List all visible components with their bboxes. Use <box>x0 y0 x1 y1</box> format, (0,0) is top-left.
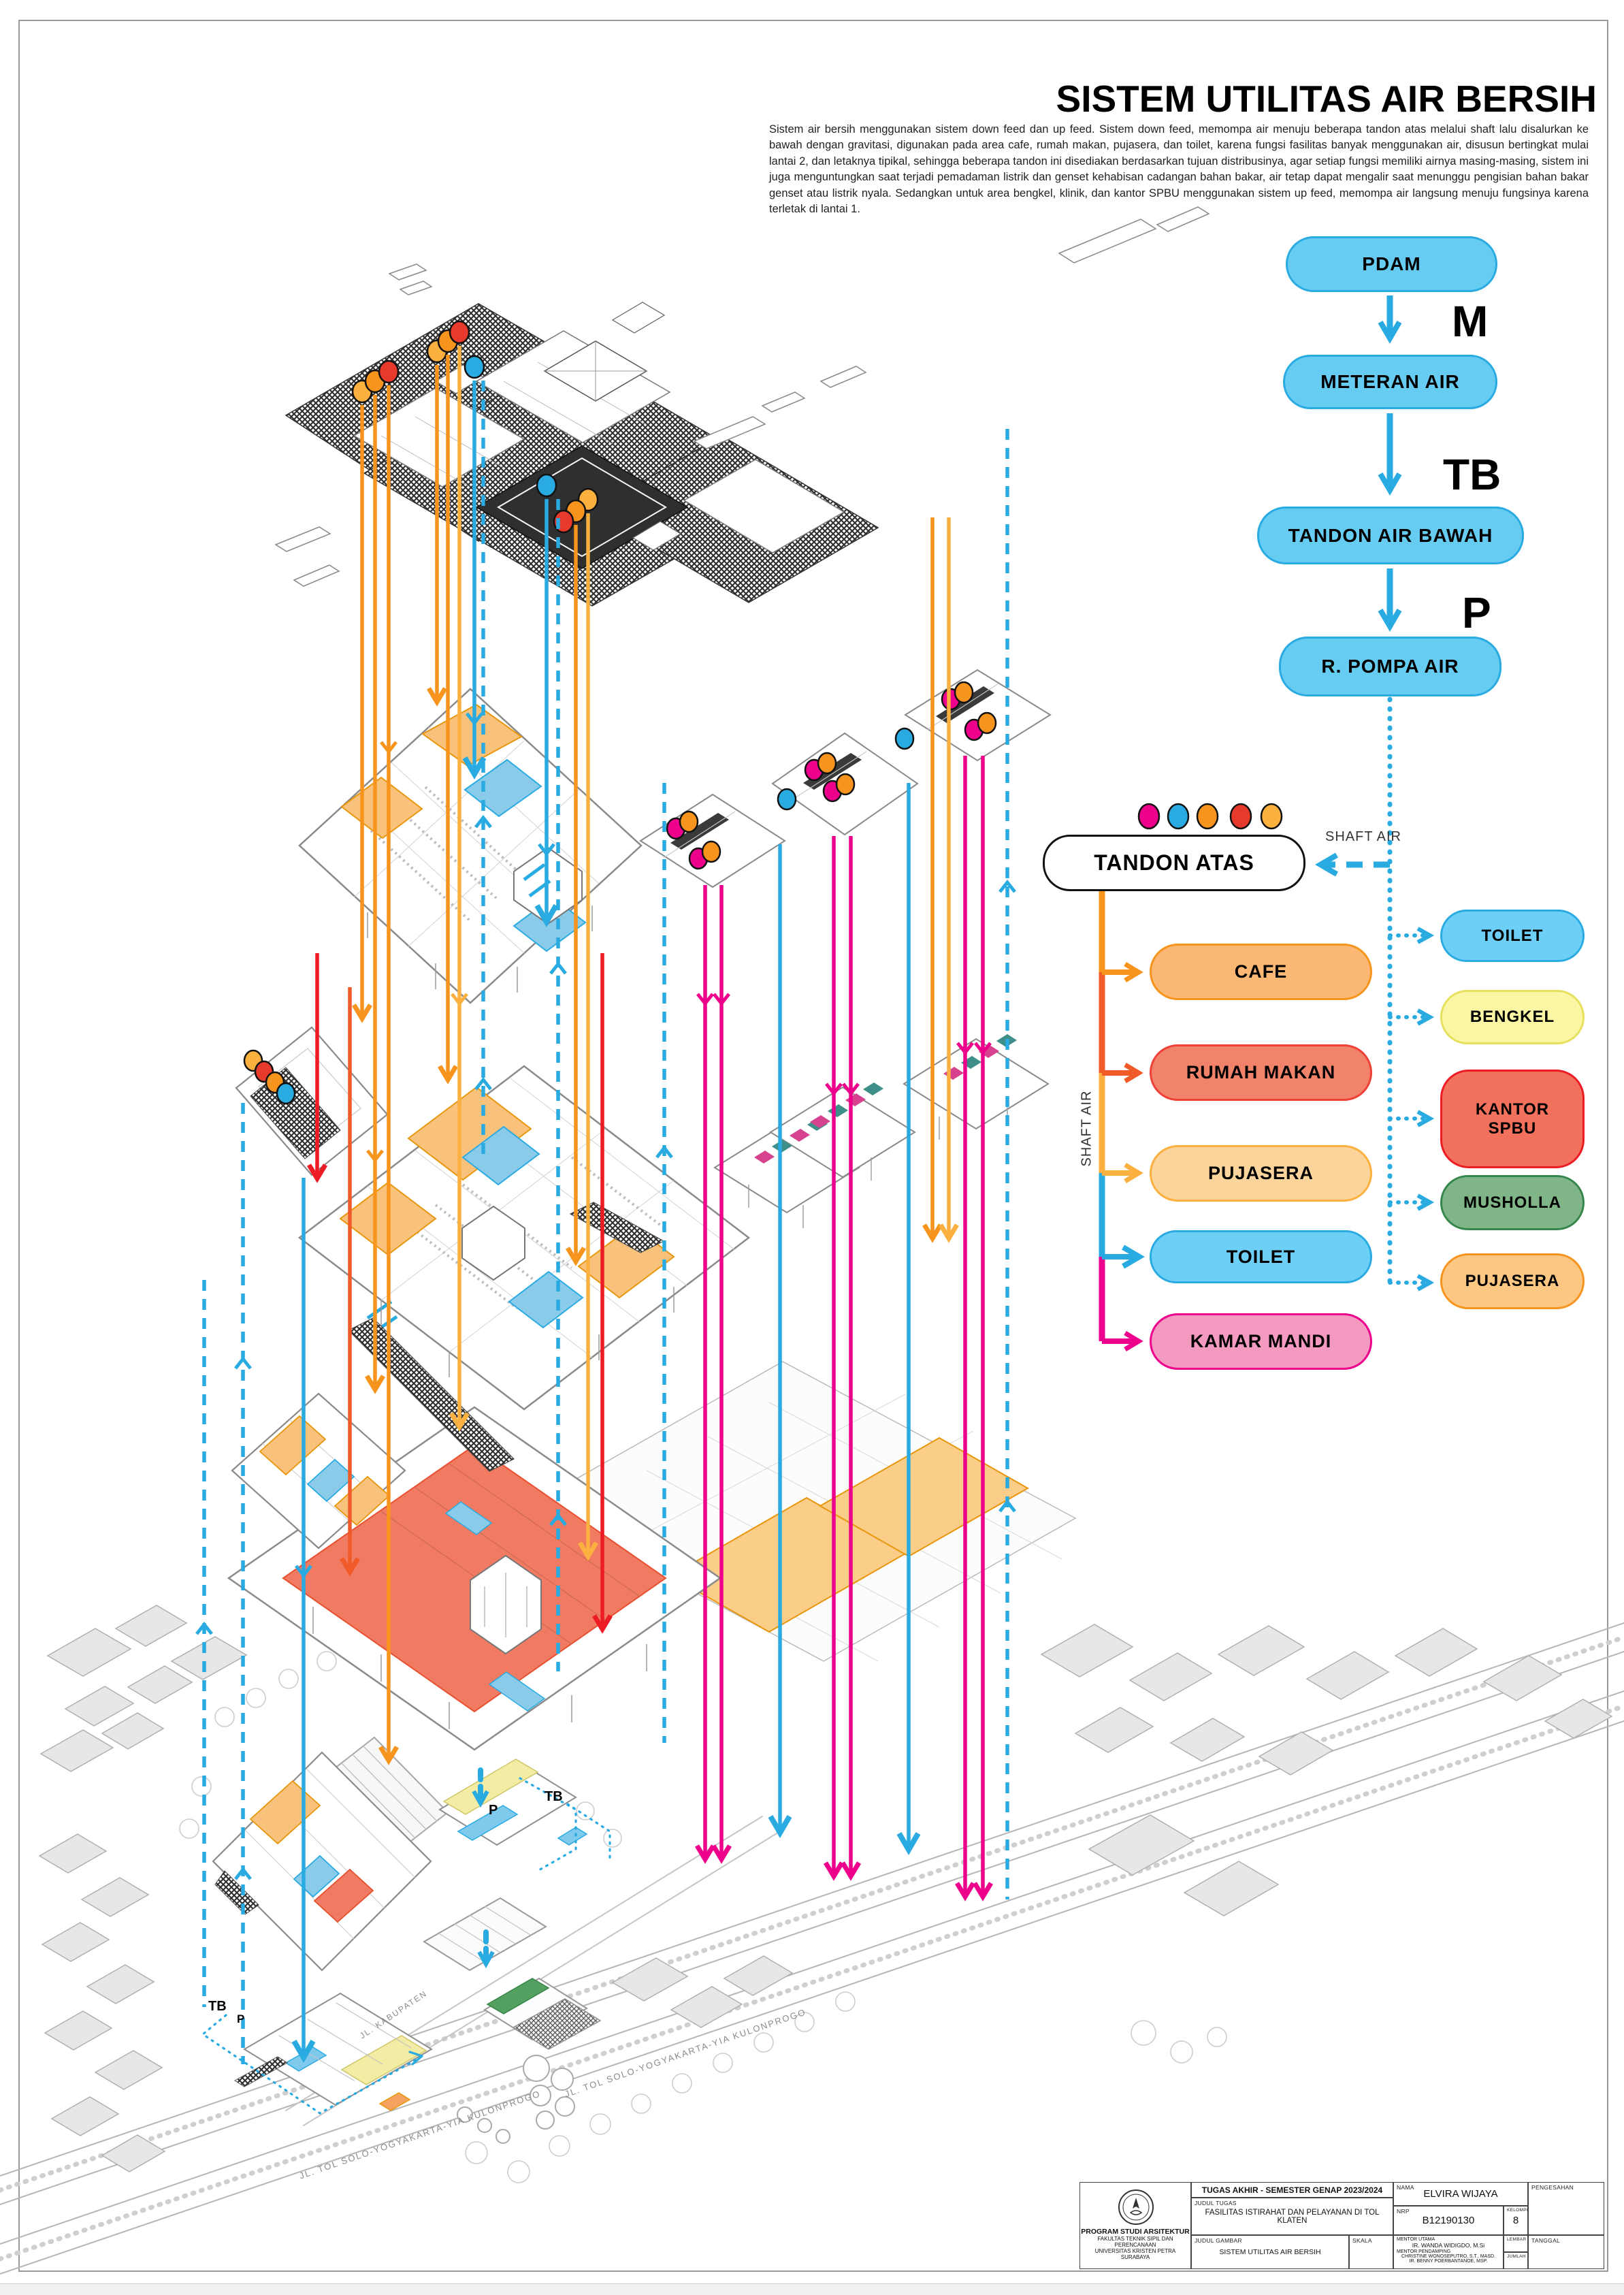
nrp-label: NRP <box>1397 2208 1410 2215</box>
level2-small-plate <box>236 1027 387 1175</box>
mentor-utama-label: MENTOR UTAMA <box>1394 2236 1503 2242</box>
judul-gambar-label: JUDUL GAMBAR <box>1195 2237 1242 2244</box>
institution-faculty: FAKULTAS TEKNIK SIPIL DAN PERENCANAAN <box>1080 2236 1190 2248</box>
roof-plate <box>276 207 1209 606</box>
flow-box-pujasera-up: PUJASERA <box>1440 1253 1585 1309</box>
titleblock-judul-tugas-cell: JUDUL TUGAS FASILITAS ISTIRAHAT DAN PELA… <box>1191 2198 1393 2235</box>
flow-box-rumah-makan: RUMAH MAKAN <box>1150 1044 1372 1101</box>
titleblock-lembar-cell: LEMBAR <box>1504 2235 1528 2252</box>
axon-drawing <box>0 0 1624 2295</box>
flow-label-m: M <box>1452 300 1488 343</box>
mentor-pendamping-1: CHRISTINE WONOSEPUTRO, S.T., MASD. <box>1394 2254 1503 2259</box>
titleblock-nama-cell: NAMA ELVIRA WIJAYA <box>1393 2182 1528 2206</box>
lembar-label: LEMBAR <box>1507 2237 1527 2242</box>
titleblock-kelompok-cell: KELOMPOK 8 <box>1504 2206 1528 2235</box>
flow-box-kantor-spbu: KANTOR SPBU <box>1440 1070 1585 1168</box>
judul-gambar-value: SISTEM UTILITAS AIR BERSIH <box>1192 2248 1348 2256</box>
site-label-p-left: P <box>237 2012 244 2026</box>
judul-tugas-value: FASILITAS ISTIRAHAT DAN PELAYANAN DI TOL… <box>1192 2209 1393 2225</box>
level2-row-plates <box>640 670 1050 887</box>
shaft-air-label-left: SHAFT AIR <box>1079 1085 1095 1173</box>
flow-box-pdam: PDAM <box>1286 236 1497 292</box>
flow-box-musholla: MUSHOLLA <box>1440 1175 1585 1230</box>
institution-name: PROGRAM STUDI ARSITEKTUR <box>1080 2228 1190 2236</box>
university-logo <box>1117 2188 1155 2226</box>
titleblock-header-cell: TUGAS AKHIR - SEMESTER GENAP 2023/2024 <box>1191 2182 1393 2198</box>
titleblock-mentor-cell: MENTOR UTAMA IR. WANDA WIDIGDO, M.Si MEN… <box>1393 2235 1504 2269</box>
judul-tugas-label: JUDUL TUGAS <box>1195 2200 1237 2206</box>
poster-sheet: SISTEM UTILITAS AIR BERSIH Sistem air be… <box>0 0 1624 2295</box>
nrp-value: B12190130 <box>1394 2215 1503 2226</box>
nama-label: NAMA <box>1397 2184 1414 2191</box>
flow-box-tandon-atas: TANDON ATAS <box>1043 835 1305 891</box>
site-plan <box>0 1605 1624 2274</box>
tanggal-label: TANGGAL <box>1531 2237 1560 2244</box>
flow-box-toilet-up: TOILET <box>1440 910 1585 962</box>
jumlah-label: JUMLAH <box>1507 2254 1526 2259</box>
institution-univ: UNIVERSITAS KRISTEN PETRA <box>1080 2248 1190 2254</box>
shaft-air-label-right: SHAFT AIR <box>1325 829 1401 845</box>
titleblock-header: TUGAS AKHIR - SEMESTER GENAP 2023/2024 <box>1202 2185 1382 2195</box>
flow-label-tb: TB <box>1443 453 1501 496</box>
titleblock-pengesahan-cell: PENGESAHAN <box>1528 2182 1604 2235</box>
mentor-utama-value: IR. WANDA WIDIGDO, M.Si <box>1394 2242 1503 2249</box>
page-edge <box>0 2283 1624 2295</box>
site-label-tb-left: TB <box>208 1999 227 2015</box>
flow-box-r-pompa-air: R. POMPA AIR <box>1279 637 1501 696</box>
titleblock-judul-gambar-cell: JUDUL GAMBAR SISTEM UTILITAS AIR BERSIH <box>1191 2235 1349 2269</box>
mentor-pendamping-label: MENTOR PENDAMPING <box>1394 2249 1503 2254</box>
titleblock-tanggal-cell: TANGGAL <box>1528 2235 1604 2269</box>
site-label-p-right: P <box>489 1803 498 1818</box>
level1-plate <box>229 1362 1075 1750</box>
pengesahan-label: PENGESAHAN <box>1531 2184 1574 2191</box>
titleblock-jumlah-cell: JUMLAH <box>1504 2252 1528 2269</box>
flow-box-meteran-air: METERAN AIR <box>1283 355 1497 409</box>
flow-box-kamar-mandi: KAMAR MANDI <box>1150 1313 1372 1370</box>
flow-box-cafe: CAFE <box>1150 944 1372 1000</box>
skala-label: SKALA <box>1352 2237 1372 2244</box>
mentor-pendamping-2: IR. BENNY POERBANTANOE, MSP. <box>1394 2259 1503 2264</box>
intro-paragraph: Sistem air bersih menggunakan sistem dow… <box>769 122 1589 218</box>
flow-box-toilet-down: TOILET <box>1150 1230 1372 1283</box>
flow-label-p: P <box>1462 591 1491 635</box>
site-label-tb-right: TB <box>545 1789 563 1805</box>
titleblock-nrp-cell: NRP B12190130 <box>1393 2206 1504 2235</box>
level3-row-plates <box>715 1034 1048 1228</box>
flow-box-bengkel: BENGKEL <box>1440 990 1585 1044</box>
flow-box-tandon-air-bawah: TANDON AIR BAWAH <box>1257 507 1524 564</box>
kelompok-value: 8 <box>1504 2215 1527 2226</box>
titleblock-logo-cell: PROGRAM STUDI ARSITEKTUR FAKULTAS TEKNIK… <box>1079 2182 1191 2269</box>
titleblock-skala-cell: SKALA <box>1349 2235 1393 2269</box>
institution-city: SURABAYA <box>1080 2254 1190 2260</box>
page-title: SISTEM UTILITAS AIR BERSIH <box>916 77 1597 121</box>
flow-box-pujasera-down: PUJASERA <box>1150 1145 1372 1202</box>
